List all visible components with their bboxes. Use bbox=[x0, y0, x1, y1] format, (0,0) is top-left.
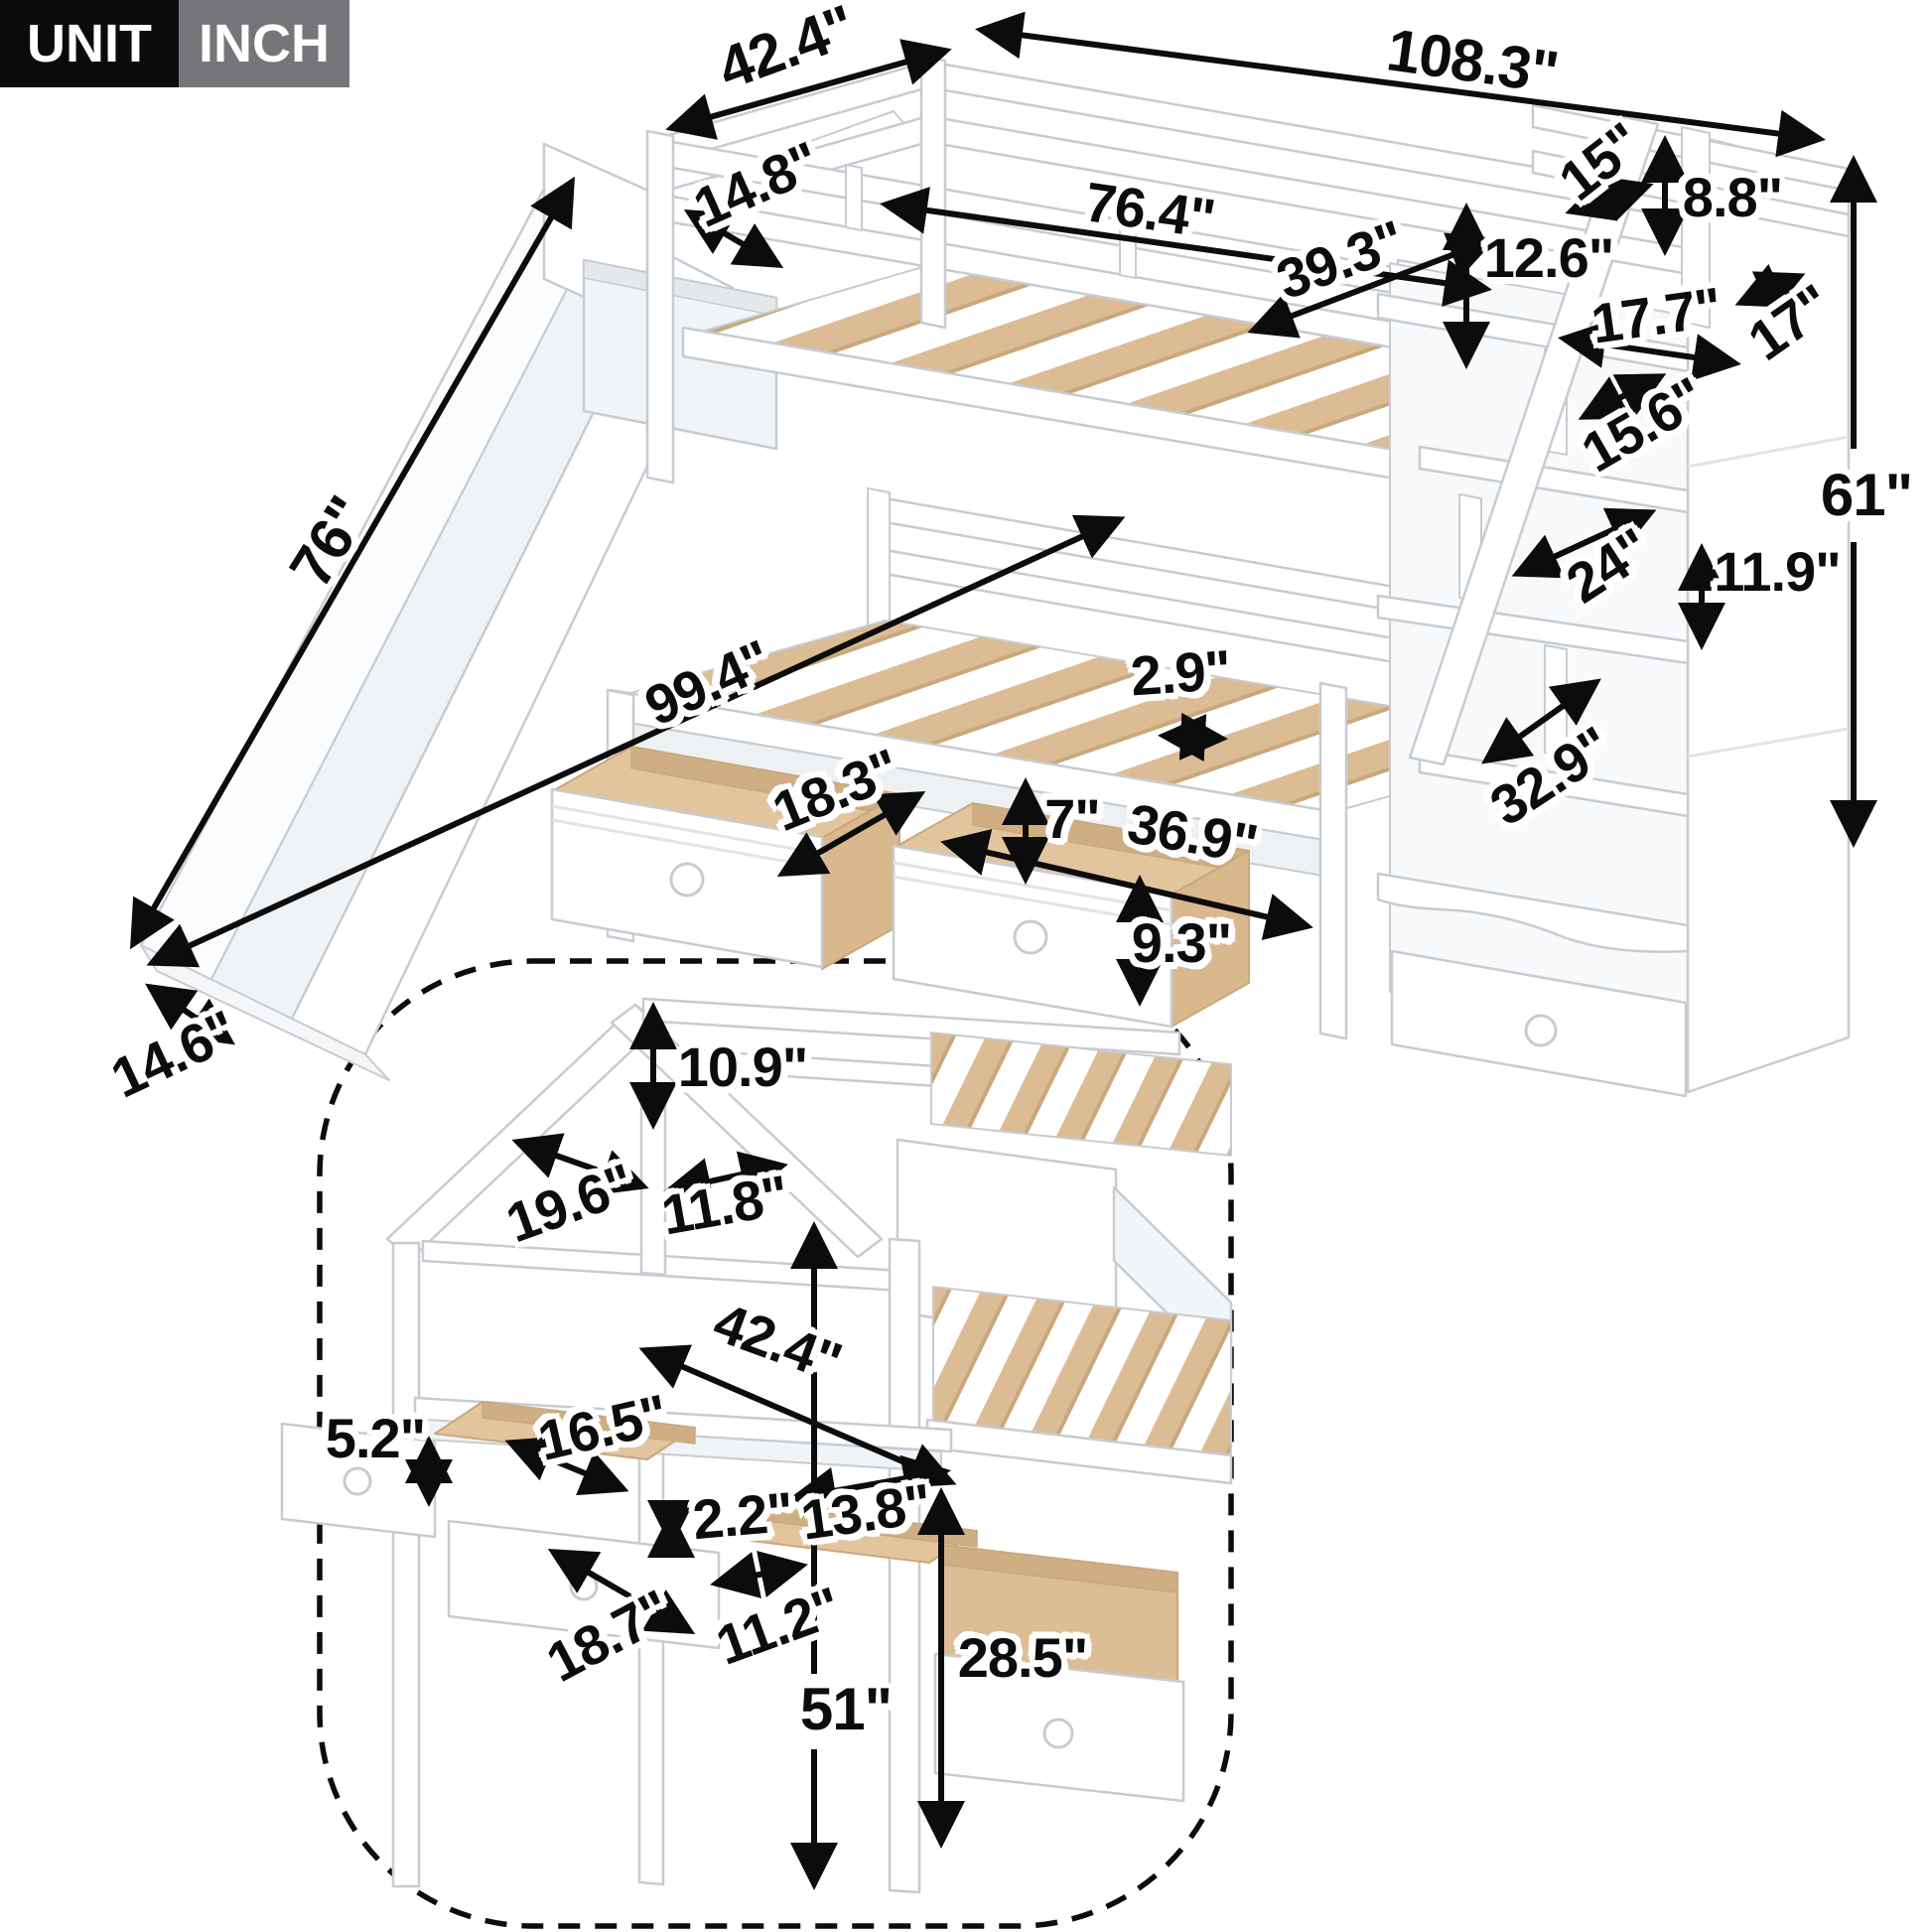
dim-upper-guardrail-height: 8.8" bbox=[1683, 170, 1782, 225]
unit-badge-value: INCH bbox=[179, 0, 349, 87]
unit-badge-label: UNIT bbox=[0, 0, 179, 87]
dim-roof-height: 10.9" bbox=[678, 1039, 808, 1095]
dim-slat-gap: 2.9" bbox=[1129, 642, 1232, 705]
dim-overall-height: 61" bbox=[1821, 466, 1912, 525]
dim-desk-height: 51" bbox=[800, 1680, 892, 1739]
dim-tray-height: 2.2" bbox=[691, 1484, 795, 1549]
dim-shelf-opening-height: 11.9" bbox=[1714, 544, 1840, 600]
unit-badge: UNIT INCH bbox=[0, 0, 349, 87]
dim-upper-rail-height: 12.6" bbox=[1484, 230, 1614, 286]
dim-drawer-inner-height: 7" bbox=[1044, 791, 1100, 847]
dim-desk-drawer-height: 5.2" bbox=[326, 1411, 425, 1466]
dim-drawer-front-height: 9.3" bbox=[1132, 915, 1231, 971]
dimension-diagram: UNIT INCH 42.4" 108.3" 14.8" 76.4" 39.3"… bbox=[0, 0, 1932, 1932]
dim-under-bed-height: 28.5" bbox=[958, 1630, 1088, 1686]
